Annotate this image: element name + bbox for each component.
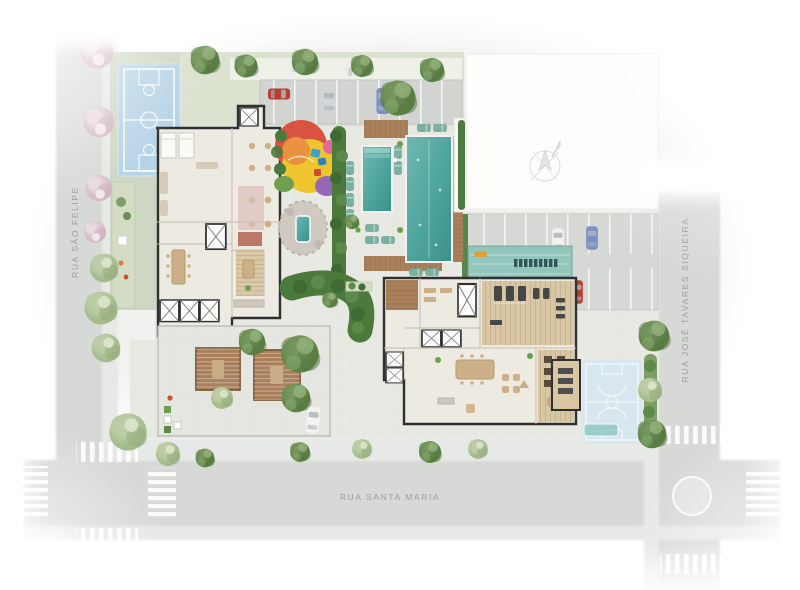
car-white-south <box>305 406 321 433</box>
upper-building <box>156 106 280 336</box>
street-label-left: RUA SÃO FELIPE <box>70 186 80 278</box>
car-silver <box>323 88 336 114</box>
pool-east-hedge <box>458 120 465 210</box>
play-toy <box>314 169 321 176</box>
pergola-terrace <box>158 326 330 436</box>
bike-racks <box>514 259 557 267</box>
site-plan: RUA SÃO FELIPE RUA JOSÉ TAVARES SIQUEIRA… <box>0 0 800 590</box>
rug <box>238 186 264 230</box>
gym <box>482 281 574 345</box>
car-red <box>268 88 290 99</box>
spa-water-feature <box>279 201 327 255</box>
play-toy <box>318 157 327 165</box>
site-plan-canvas: RUA SÃO FELIPE RUA JOSÉ TAVARES SIQUEIRA… <box>0 0 800 590</box>
neighbor-lot <box>466 54 658 209</box>
hedge-column <box>330 126 348 282</box>
roundabout <box>673 477 711 515</box>
water-feature <box>584 424 618 436</box>
mosaic-rug <box>238 232 262 246</box>
bench <box>474 251 487 257</box>
storage-kiosk <box>552 360 580 410</box>
lower-building <box>384 278 576 424</box>
street-label-bottom: RUA SANTA MARIA <box>340 492 440 502</box>
pergola <box>196 348 240 390</box>
car-blue <box>586 226 598 249</box>
street-label-right: RUA JOSÉ TAVARES SIQUEIRA <box>680 217 690 382</box>
